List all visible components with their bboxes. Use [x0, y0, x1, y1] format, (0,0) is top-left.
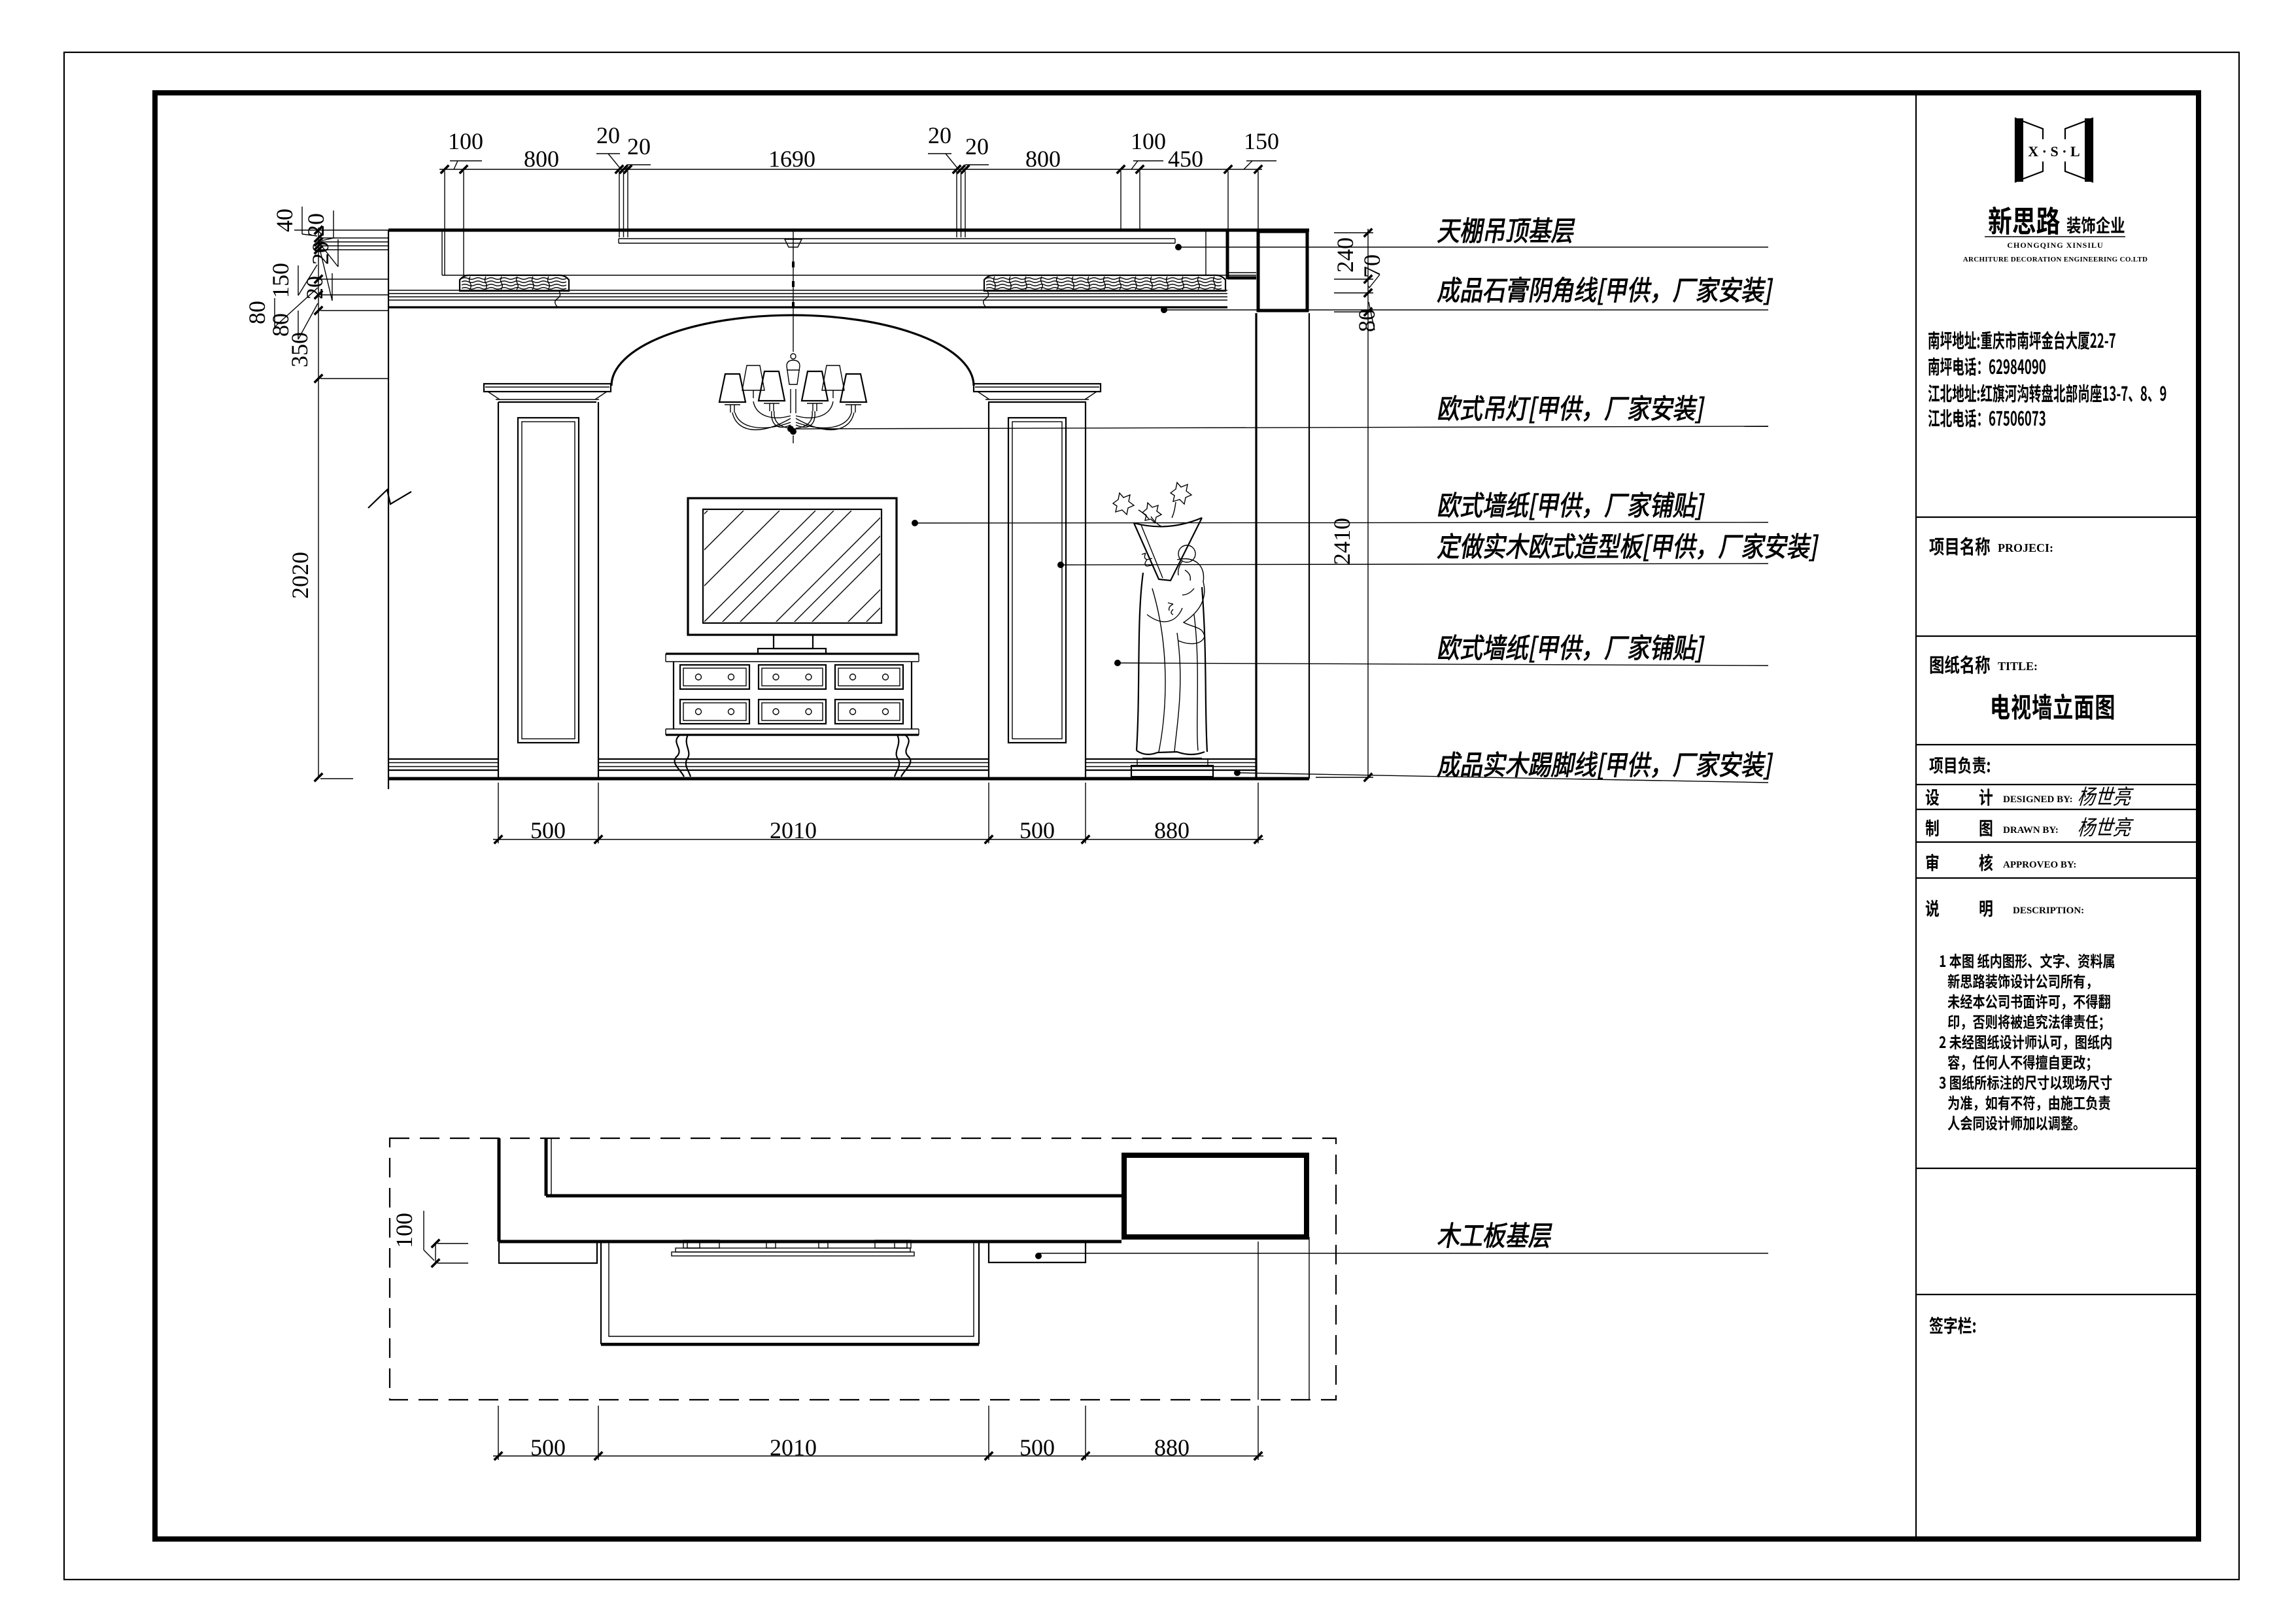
svg-text:1690: 1690 [768, 146, 815, 172]
svg-text:2010: 2010 [770, 817, 817, 843]
svg-text:350: 350 [286, 332, 313, 367]
svg-text:500: 500 [530, 1434, 566, 1461]
svg-text:PROJECI:: PROJECI: [1998, 541, 2053, 554]
svg-text:20: 20 [928, 122, 951, 148]
svg-text:2010: 2010 [770, 1434, 817, 1461]
svg-text:20: 20 [965, 133, 989, 160]
svg-text:DESIGNED BY:: DESIGNED BY: [2003, 794, 2073, 805]
svg-text:80: 80 [1354, 309, 1380, 332]
svg-text:20: 20 [596, 122, 620, 148]
svg-text:40: 40 [271, 209, 298, 232]
svg-text:880: 880 [1154, 817, 1190, 843]
svg-text:20: 20 [303, 213, 329, 237]
svg-text:ARCHITURE DECORATION ENGINEERI: ARCHITURE DECORATION ENGINEERING CO.LTD [1963, 256, 2148, 263]
svg-text:70: 70 [1359, 254, 1385, 278]
svg-text:100: 100 [1131, 128, 1166, 154]
svg-text:TITLE:: TITLE: [1998, 660, 2038, 673]
svg-text:500: 500 [1019, 1434, 1055, 1461]
svg-text:100: 100 [391, 1213, 417, 1248]
svg-text:450: 450 [1168, 146, 1203, 172]
svg-text:DRAWN BY:: DRAWN BY: [2003, 825, 2059, 836]
svg-text:500: 500 [530, 817, 566, 843]
svg-text:CHONGQING XINSILU: CHONGQING XINSILU [2007, 241, 2103, 250]
svg-text:800: 800 [524, 146, 559, 172]
svg-text:150: 150 [267, 263, 294, 298]
svg-text:500: 500 [1019, 817, 1055, 843]
svg-text:20: 20 [301, 276, 328, 299]
svg-text:DESCRIPTION:: DESCRIPTION: [2013, 905, 2084, 916]
svg-text:APPROVEO BY:: APPROVEO BY: [2003, 860, 2076, 870]
svg-text:800: 800 [1025, 146, 1061, 172]
svg-text:150: 150 [1244, 128, 1279, 154]
svg-text:80: 80 [244, 301, 270, 324]
svg-text:100: 100 [448, 128, 483, 154]
svg-text:2020: 2020 [287, 552, 313, 599]
svg-text:240: 240 [1332, 237, 1358, 273]
svg-text:880: 880 [1154, 1434, 1190, 1461]
svg-text:X · S · L: X · S · L [2028, 143, 2080, 160]
svg-text:2410: 2410 [1329, 518, 1355, 565]
svg-text:20: 20 [627, 133, 651, 160]
